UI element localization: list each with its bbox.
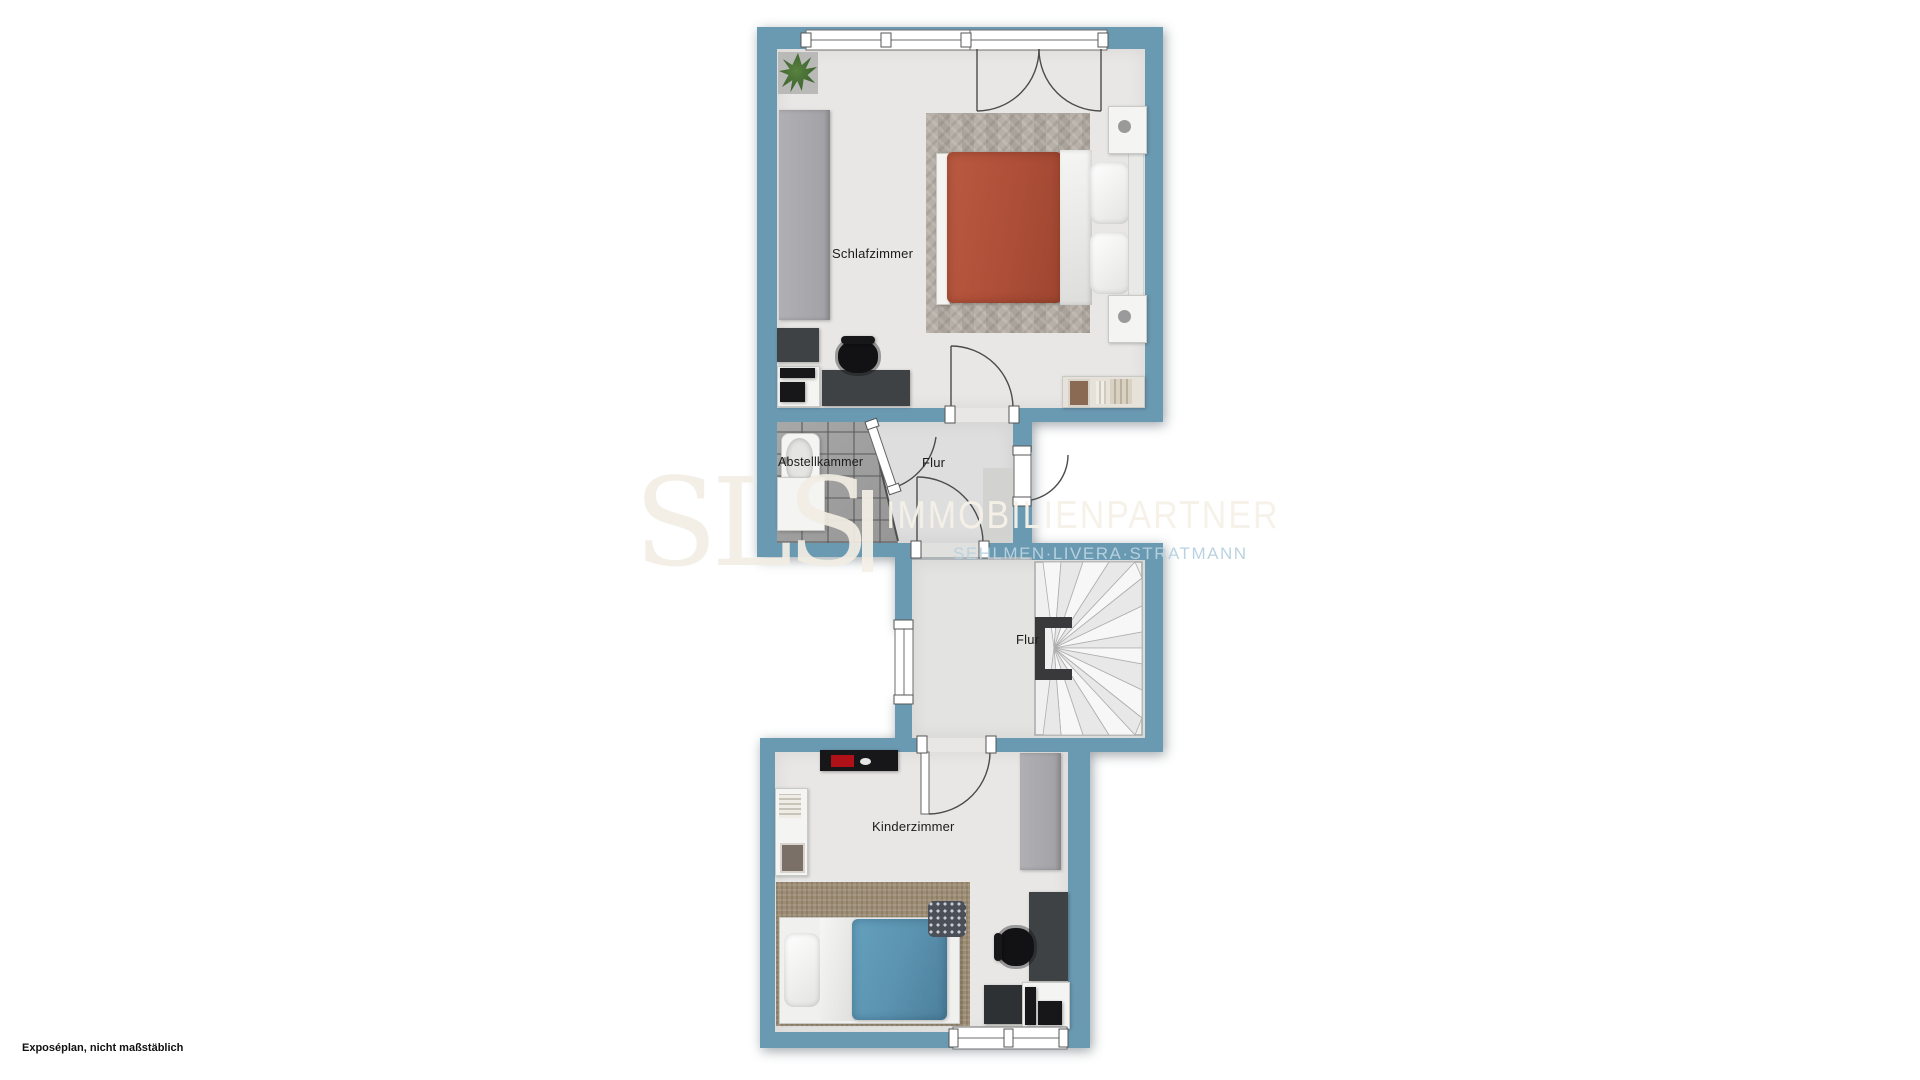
footer-disclaimer: Exposéplan, nicht maßstäblich: [22, 1042, 183, 1054]
wall: [1068, 752, 1090, 1048]
kids-tall-item: [1025, 987, 1036, 1025]
wall: [1145, 49, 1163, 422]
wall: [777, 408, 951, 422]
printer: [780, 368, 815, 378]
books: [1096, 381, 1106, 404]
wardrobe: [779, 110, 830, 320]
bed-headboard: [1128, 148, 1144, 309]
kids-printer: [1038, 1001, 1062, 1025]
room-label-flur-upper: Flur: [922, 455, 945, 470]
wall: [1145, 560, 1163, 738]
floor-cushion: [928, 901, 966, 937]
dresser: [777, 328, 819, 362]
wall: [760, 1032, 1090, 1048]
bed-blanket: [947, 152, 1062, 303]
tv-board-oval: [860, 758, 871, 765]
room-label-flur-lower: Flur: [1016, 632, 1039, 647]
office-chair-back: [841, 336, 875, 344]
watermark-brand: IMMOBILIENPARTNER: [886, 494, 1280, 538]
watermark-divider: [862, 490, 873, 572]
wall: [1013, 422, 1032, 452]
bed-sheet: [1060, 150, 1092, 305]
kids-office-chair: [998, 928, 1034, 966]
wall: [777, 27, 1163, 49]
wall: [1013, 408, 1145, 422]
bed-pillow-top: [1090, 162, 1130, 224]
watermark-tagline: SEHLMEN·LIVERA·STRATMANN: [953, 544, 1248, 564]
printer-body: [780, 382, 805, 402]
doorway-patch: [951, 408, 1013, 422]
room-label-kinderzimmer: Kinderzimmer: [872, 819, 955, 834]
wall: [895, 697, 912, 738]
kids-chair-back: [994, 933, 1002, 961]
wall: [760, 752, 775, 1048]
nightstand-top-lamp: [1118, 120, 1131, 133]
bed-pillow-bottom: [1090, 232, 1130, 294]
desk: [822, 370, 910, 406]
floorplan-canvas: Schlafzimmer Abstellkammer Flur Flur Kin…: [0, 0, 1920, 1080]
wall: [990, 738, 1163, 752]
kids-wardrobe: [1020, 753, 1061, 870]
kids-cabinet: [984, 985, 1022, 1024]
kids-desk: [1029, 892, 1068, 981]
kids-bed-sheet: [820, 918, 856, 1021]
picture-frame: [1068, 379, 1090, 407]
shelf-books: [779, 794, 801, 818]
shelf-picture: [780, 843, 805, 873]
wall: [895, 557, 912, 628]
room-label-schlafzimmer: Schlafzimmer: [832, 246, 913, 261]
books: [1110, 379, 1132, 404]
watermark-logo: SLS: [634, 462, 864, 584]
kids-bed-pillow: [784, 933, 820, 1007]
doorway-patch: [923, 738, 990, 752]
flur-lower-floor: [912, 560, 1145, 738]
doorway-patch: [1013, 452, 1032, 500]
office-chair: [838, 340, 878, 373]
nightstand-bottom-lamp: [1118, 310, 1131, 323]
tv-board-red-item: [831, 755, 854, 767]
